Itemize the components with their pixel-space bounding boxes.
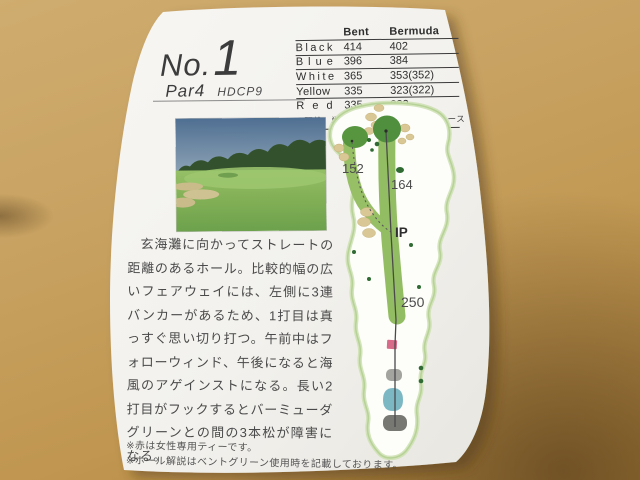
footnotes: ※赤は女性専用ティーです。 ※ホール解説はベントグリーン使用時を記載しております… [126, 440, 404, 474]
bent-yardage: 414 [343, 41, 389, 54]
bermuda-yardage: 384 [390, 54, 459, 67]
column-header-bent: Bent [343, 26, 389, 40]
pin-dot-bermuda [351, 140, 354, 143]
hole-map: 152 164 IP 250 [322, 100, 474, 472]
hole-par: Par4 [165, 81, 205, 102]
tee-name: Yellow [296, 85, 344, 98]
yardage-164-label: 164 [391, 177, 413, 192]
hole-hdcp: HDCP9 [217, 84, 263, 99]
bent-yardage: 396 [344, 55, 390, 68]
blue-tee-box [383, 388, 403, 411]
bermuda-yardage: 402 [389, 40, 458, 53]
course-photo [176, 117, 327, 231]
pin-dot [384, 129, 387, 132]
yardage-table-header: Bent Bermuda [295, 25, 458, 40]
bent-yardage: 335 [344, 84, 390, 97]
white-tee-box [386, 369, 402, 381]
hole-no-label: No. [160, 47, 212, 84]
tee-name: Blue [296, 56, 344, 69]
bermuda-yardage: 323(322) [390, 83, 459, 96]
bermuda-yardage: 353(352) [390, 69, 459, 82]
hole-title: No. 1 Par4 HDCP9 [159, 37, 263, 102]
tee-name: White [296, 70, 344, 83]
tee-name: Black [295, 41, 343, 54]
hole-description: 玄海灘に向かってストレートの距離のあるホール。比較的幅の広いフェアウェイには、左… [126, 232, 333, 468]
ip-label: IP [395, 225, 408, 240]
column-header-bermuda: Bermuda [389, 25, 439, 39]
yardage-152-label: 152 [342, 161, 364, 176]
yardage-250-label: 250 [401, 294, 425, 310]
hole-number: 1 [213, 37, 242, 77]
bent-yardage: 365 [344, 70, 390, 83]
bermuda-green [342, 126, 368, 148]
